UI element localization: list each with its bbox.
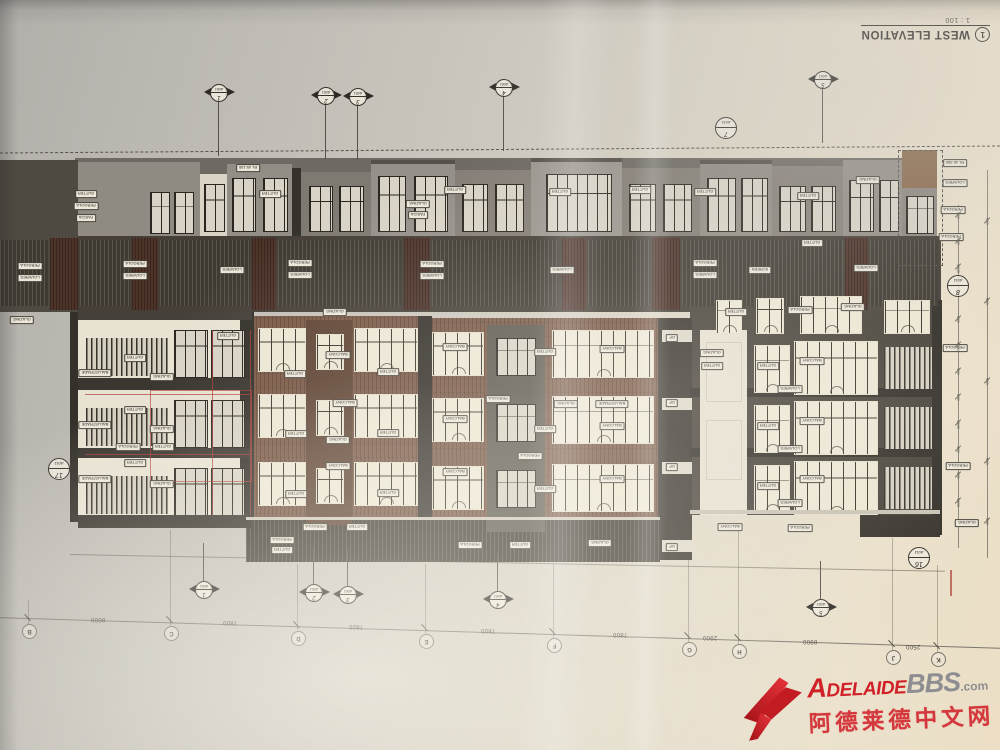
drawing-block xyxy=(884,407,932,449)
label-pill: PERGOLA xyxy=(17,262,42,270)
label-pill: LOUVRES xyxy=(549,266,574,274)
drawing-block xyxy=(663,184,692,232)
label-pill: GUTTER xyxy=(757,362,779,370)
label-pill: PERGOLA xyxy=(269,536,294,544)
drawing-block xyxy=(150,390,252,482)
label-pill: BALCONY xyxy=(599,345,624,353)
marker-stem xyxy=(820,561,821,599)
drawing-block xyxy=(716,300,742,334)
label-pill: GUTTER xyxy=(271,546,293,554)
label-pill: GUTTER xyxy=(549,188,571,196)
drawing-block xyxy=(800,296,862,334)
marker-stem xyxy=(325,103,326,159)
marker-stem xyxy=(822,87,823,143)
label-pill: FASCIA xyxy=(408,211,428,219)
title-block: 1 WEST ELEVATION 1 : 100 xyxy=(861,16,990,42)
label-pill: PERGOLA xyxy=(287,259,312,267)
label-pill: LOUVRES xyxy=(777,499,802,507)
extension-line xyxy=(892,538,893,650)
label-pill: GLAZING xyxy=(10,316,34,324)
label-pill: LOUVRES xyxy=(942,179,967,187)
drawing-block xyxy=(552,330,654,378)
label-pill: BALCONY xyxy=(717,523,742,531)
marker-stem xyxy=(218,100,219,156)
right-dim-line-2 xyxy=(987,170,988,558)
drawing-block xyxy=(339,186,364,232)
drawing-block xyxy=(252,238,276,310)
label-pill: BALUSTRADE xyxy=(79,421,112,429)
label-pill: GLAZING xyxy=(841,303,865,311)
extension-line xyxy=(688,560,689,642)
drawing-block xyxy=(70,312,78,522)
drawing-block xyxy=(496,338,536,376)
label-pill: PERGOLA xyxy=(115,443,140,451)
label-pill: BALCONY xyxy=(442,415,467,423)
label-pill: RL 45.100 xyxy=(236,164,260,172)
label-pill: PERGOLA xyxy=(485,395,510,403)
drawing-block xyxy=(496,404,536,442)
drawing-block xyxy=(258,328,306,372)
label-pill: GUTTER xyxy=(346,523,368,531)
label-pill: GLAZING xyxy=(700,349,724,357)
label-pill: DP xyxy=(666,463,678,471)
label-pill: LOUVRES xyxy=(853,264,878,272)
dimension-value: 2500 xyxy=(906,643,921,649)
label-pill: FASCIA xyxy=(76,214,96,222)
watermark-brand: AdelaideBBS.com xyxy=(807,667,994,702)
drawing-number-bubble: 1 xyxy=(975,27,990,42)
label-pill: GUTTER xyxy=(797,192,819,200)
label-pill: GLAZING xyxy=(150,425,174,433)
watermark: AdelaideBBS.com 阿德莱德中文网 xyxy=(735,662,995,745)
extension-line xyxy=(170,530,171,626)
label-pill: GUTTER xyxy=(701,362,723,370)
marker-stem xyxy=(313,546,314,584)
label-pill: GUTTER xyxy=(377,429,399,437)
label-pill: GUTTER xyxy=(377,489,399,497)
label-pill: BALCONY xyxy=(799,357,824,365)
label-pill: GUTTER xyxy=(152,443,174,451)
label-pill: PERGOLA xyxy=(73,202,98,210)
extension-line xyxy=(425,564,426,634)
label-pill: PERGOLA xyxy=(692,259,717,267)
label-pill: PERGOLA xyxy=(457,541,482,549)
label-pill: BALCONY xyxy=(332,399,357,407)
label-pill: GUTTER xyxy=(757,422,779,430)
drawing-block xyxy=(78,515,252,528)
drawing-block xyxy=(884,300,930,334)
label-pill: DP xyxy=(666,334,678,342)
drawing-block xyxy=(884,467,932,509)
label-pill: GUTTER xyxy=(694,188,716,196)
drawing-block xyxy=(546,174,612,232)
label-pill: GUTTER xyxy=(725,308,747,316)
label-pill: GUTTER xyxy=(217,332,239,340)
drawing-block xyxy=(496,470,536,508)
label-pill: RL 46.360 xyxy=(943,159,967,167)
drawing-block xyxy=(78,312,252,320)
label-pill: GUTTER xyxy=(284,370,306,378)
label-pill: GUTTER xyxy=(629,186,651,194)
label-pill: PERGOLA xyxy=(517,452,542,460)
label-pill: GUTTER xyxy=(534,348,556,356)
drawing-block xyxy=(884,347,932,389)
label-pill: GUTTER xyxy=(124,459,146,467)
drawing-block xyxy=(292,168,301,236)
label-pill: BALUSTRADE xyxy=(79,369,112,377)
marker-stem xyxy=(503,95,504,151)
label-pill: PERGOLA xyxy=(419,260,444,268)
drawing-block xyxy=(860,515,940,537)
drawing-block xyxy=(531,158,622,162)
label-pill: BALCONY xyxy=(442,343,467,351)
label-pill: DP xyxy=(666,543,678,551)
label-pill: GLAZING xyxy=(554,400,578,408)
drawing-block xyxy=(354,328,418,372)
label-pill: DP xyxy=(666,399,678,407)
drawing-block xyxy=(258,462,306,506)
drawing-block xyxy=(706,420,742,480)
label-pill: GUTTER xyxy=(801,239,823,247)
dimension-value: 7800 xyxy=(223,619,238,625)
title-row: 1 WEST ELEVATION xyxy=(861,25,990,42)
label-pill: LOUVRES xyxy=(17,274,42,282)
drawing-block xyxy=(700,160,772,164)
drawing-block xyxy=(690,510,940,514)
label-pill: GUTTER xyxy=(259,190,281,198)
drawing-block xyxy=(794,461,878,515)
label-pill: LOUVRES xyxy=(419,272,444,280)
label-pill: GLAZING xyxy=(856,176,880,184)
extension-line xyxy=(937,565,938,652)
label-pill: LOUVRES xyxy=(777,445,802,453)
drawing-block xyxy=(0,240,48,306)
label-pill: LOUVRES xyxy=(692,271,717,279)
label-pill: GUTTER xyxy=(377,368,399,376)
drawing-block xyxy=(204,184,225,232)
marker-stem xyxy=(347,548,348,586)
dimension-value: 7800 xyxy=(481,627,496,633)
drawing-block xyxy=(588,240,650,306)
marker-stem xyxy=(357,104,358,160)
label-pill: GUTTER xyxy=(509,541,531,549)
label-pill: GUTTER xyxy=(757,482,779,490)
drawing-block xyxy=(50,238,78,310)
photo-of-elevation-drawing: 4006001800400600180040060018004006001800… xyxy=(0,0,1000,750)
extension-line xyxy=(738,524,739,644)
marker-stem xyxy=(203,543,204,581)
drawing-block xyxy=(150,192,170,234)
pier-d-right xyxy=(932,300,942,535)
drawing-block xyxy=(794,401,878,455)
label-pill: GLAZING xyxy=(150,373,174,381)
watermark-swoosh-icon xyxy=(735,670,816,745)
label-pill: BALCONY xyxy=(442,468,467,476)
label-pill: BALCONY xyxy=(325,462,350,470)
pier-cd xyxy=(658,318,692,560)
drawing-block xyxy=(741,178,768,232)
drawing-block xyxy=(174,192,194,234)
drawing-block xyxy=(354,462,418,506)
label-pill: BALCONY xyxy=(799,417,824,425)
dimension-value: 2900 xyxy=(703,634,718,640)
label-pill: GUTTER xyxy=(75,190,97,198)
label-pill: PERGOLA xyxy=(787,306,812,314)
label-pill: GUTTER xyxy=(534,485,556,493)
label-pill: BALCONY xyxy=(799,475,824,483)
dimension-value: 8900 xyxy=(803,638,818,644)
watermark-tagline: 阿德莱德中文网 xyxy=(809,698,996,738)
label-pill: PERGOLA xyxy=(302,523,327,531)
label-pill: BALUSTRADE xyxy=(596,400,629,408)
label-pill: LOUVRES xyxy=(287,271,312,279)
drawing-block xyxy=(950,570,952,596)
drawing-block xyxy=(309,186,333,232)
label-pill: PERGOLA xyxy=(787,524,812,532)
label-pill: BALCONY xyxy=(599,475,624,483)
dimension-value: 7800 xyxy=(613,631,628,637)
drawing-block xyxy=(652,238,680,310)
drawing-block xyxy=(246,517,660,520)
label-pill: GLAZING xyxy=(955,519,979,527)
label-pill: BALCONY xyxy=(325,351,350,359)
label-pill: BALCONY xyxy=(599,422,624,430)
drawing-block xyxy=(432,240,558,306)
label-pill: SCREEN xyxy=(749,266,772,274)
label-pill: LOUVRES xyxy=(777,385,802,393)
watermark-text: AdelaideBBS.com 阿德莱德中文网 xyxy=(807,667,995,738)
drawing-block xyxy=(495,184,524,232)
boundary-dashed-rect xyxy=(898,150,943,266)
drawing-block xyxy=(316,468,344,504)
dimension-value: 8000 xyxy=(91,616,106,622)
extension-line xyxy=(553,564,554,638)
drawing-block xyxy=(552,464,654,512)
drawing-block xyxy=(794,341,878,395)
label-pill: GUTTER xyxy=(444,186,466,194)
drawing-block xyxy=(849,180,874,232)
label-pill: GLAZING xyxy=(150,480,174,488)
label-pill: LOUVRES xyxy=(219,266,244,274)
drawing-block xyxy=(378,176,406,232)
right-dim-line-1 xyxy=(958,205,959,548)
label-pill: GLAZING xyxy=(326,436,350,444)
pier-bc xyxy=(418,316,432,532)
label-pill: PERGOLA xyxy=(945,462,970,470)
label-pill: GLAZING xyxy=(588,539,612,547)
drawing-block xyxy=(432,332,484,376)
marker-stem xyxy=(497,553,498,591)
drawing-title: WEST ELEVATION xyxy=(861,29,970,41)
label-pill: GUTTER xyxy=(285,490,307,498)
label-pill: GUTTER xyxy=(534,425,556,433)
drawing-block xyxy=(879,180,899,232)
label-pill: GUTTER xyxy=(285,430,307,438)
drawing-block xyxy=(263,178,288,232)
label-pill: LOUVRES xyxy=(122,272,147,280)
drawing-block xyxy=(707,178,736,232)
label-pill: GLAZING xyxy=(323,308,347,316)
drawing-block xyxy=(174,330,208,378)
label-pill: PERGOLA xyxy=(940,206,965,214)
drawing-scale: 1 : 100 xyxy=(945,16,970,23)
label-pill: GUTTER xyxy=(124,354,146,362)
label-pill: GUTTER xyxy=(124,406,146,414)
label-pill: GLAZING xyxy=(406,200,430,208)
drawing-block xyxy=(756,298,784,334)
drawing-block xyxy=(232,178,256,232)
drawing-block xyxy=(371,160,455,164)
extension-line xyxy=(297,564,298,630)
dimension-value: 7800 xyxy=(349,623,364,629)
label-pill: BALUSTRADE xyxy=(79,475,112,483)
label-pill: PERGOLA xyxy=(122,260,147,268)
